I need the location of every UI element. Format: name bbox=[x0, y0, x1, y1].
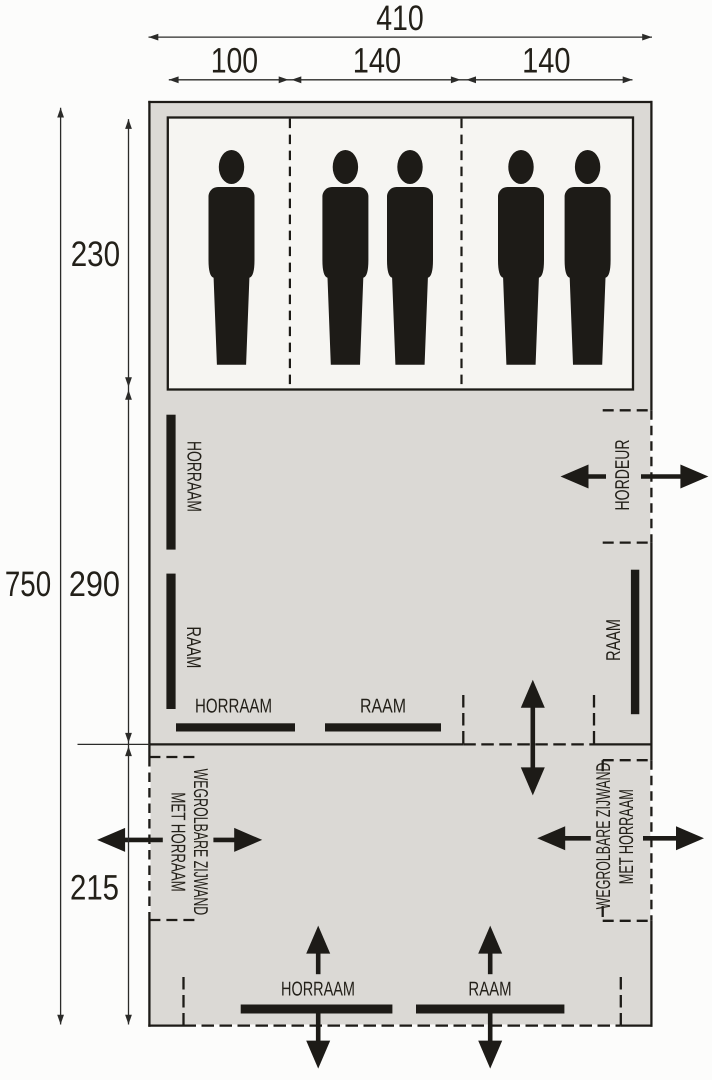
svg-text:140: 140 bbox=[522, 40, 570, 80]
svg-text:HORRAAM: HORRAAM bbox=[183, 441, 205, 512]
svg-text:RAAM: RAAM bbox=[360, 696, 406, 718]
svg-text:RAAM: RAAM bbox=[182, 627, 204, 669]
svg-text:RAAM: RAAM bbox=[468, 979, 511, 1001]
svg-text:100: 100 bbox=[211, 40, 258, 80]
svg-text:230: 230 bbox=[71, 234, 120, 274]
svg-text:410: 410 bbox=[376, 0, 424, 38]
svg-text:RAAM: RAAM bbox=[603, 619, 625, 661]
svg-text:HORDEUR: HORDEUR bbox=[612, 440, 634, 511]
svg-text:HORRAAM: HORRAAM bbox=[281, 979, 355, 1001]
svg-text:140: 140 bbox=[353, 40, 401, 80]
svg-text:WEGROLBARE ZIJWAND: WEGROLBARE ZIJWAND bbox=[189, 769, 211, 916]
svg-text:290: 290 bbox=[69, 564, 120, 604]
svg-text:HORRAAM: HORRAAM bbox=[195, 696, 272, 718]
svg-text:MET HORRAAM: MET HORRAAM bbox=[616, 789, 638, 884]
svg-text:WEGROLBARE ZIJWAND: WEGROLBARE ZIJWAND bbox=[593, 763, 615, 910]
svg-text:750: 750 bbox=[5, 564, 51, 604]
svg-text:MET HORRAAM: MET HORRAAM bbox=[166, 792, 188, 892]
svg-text:215: 215 bbox=[70, 868, 119, 908]
